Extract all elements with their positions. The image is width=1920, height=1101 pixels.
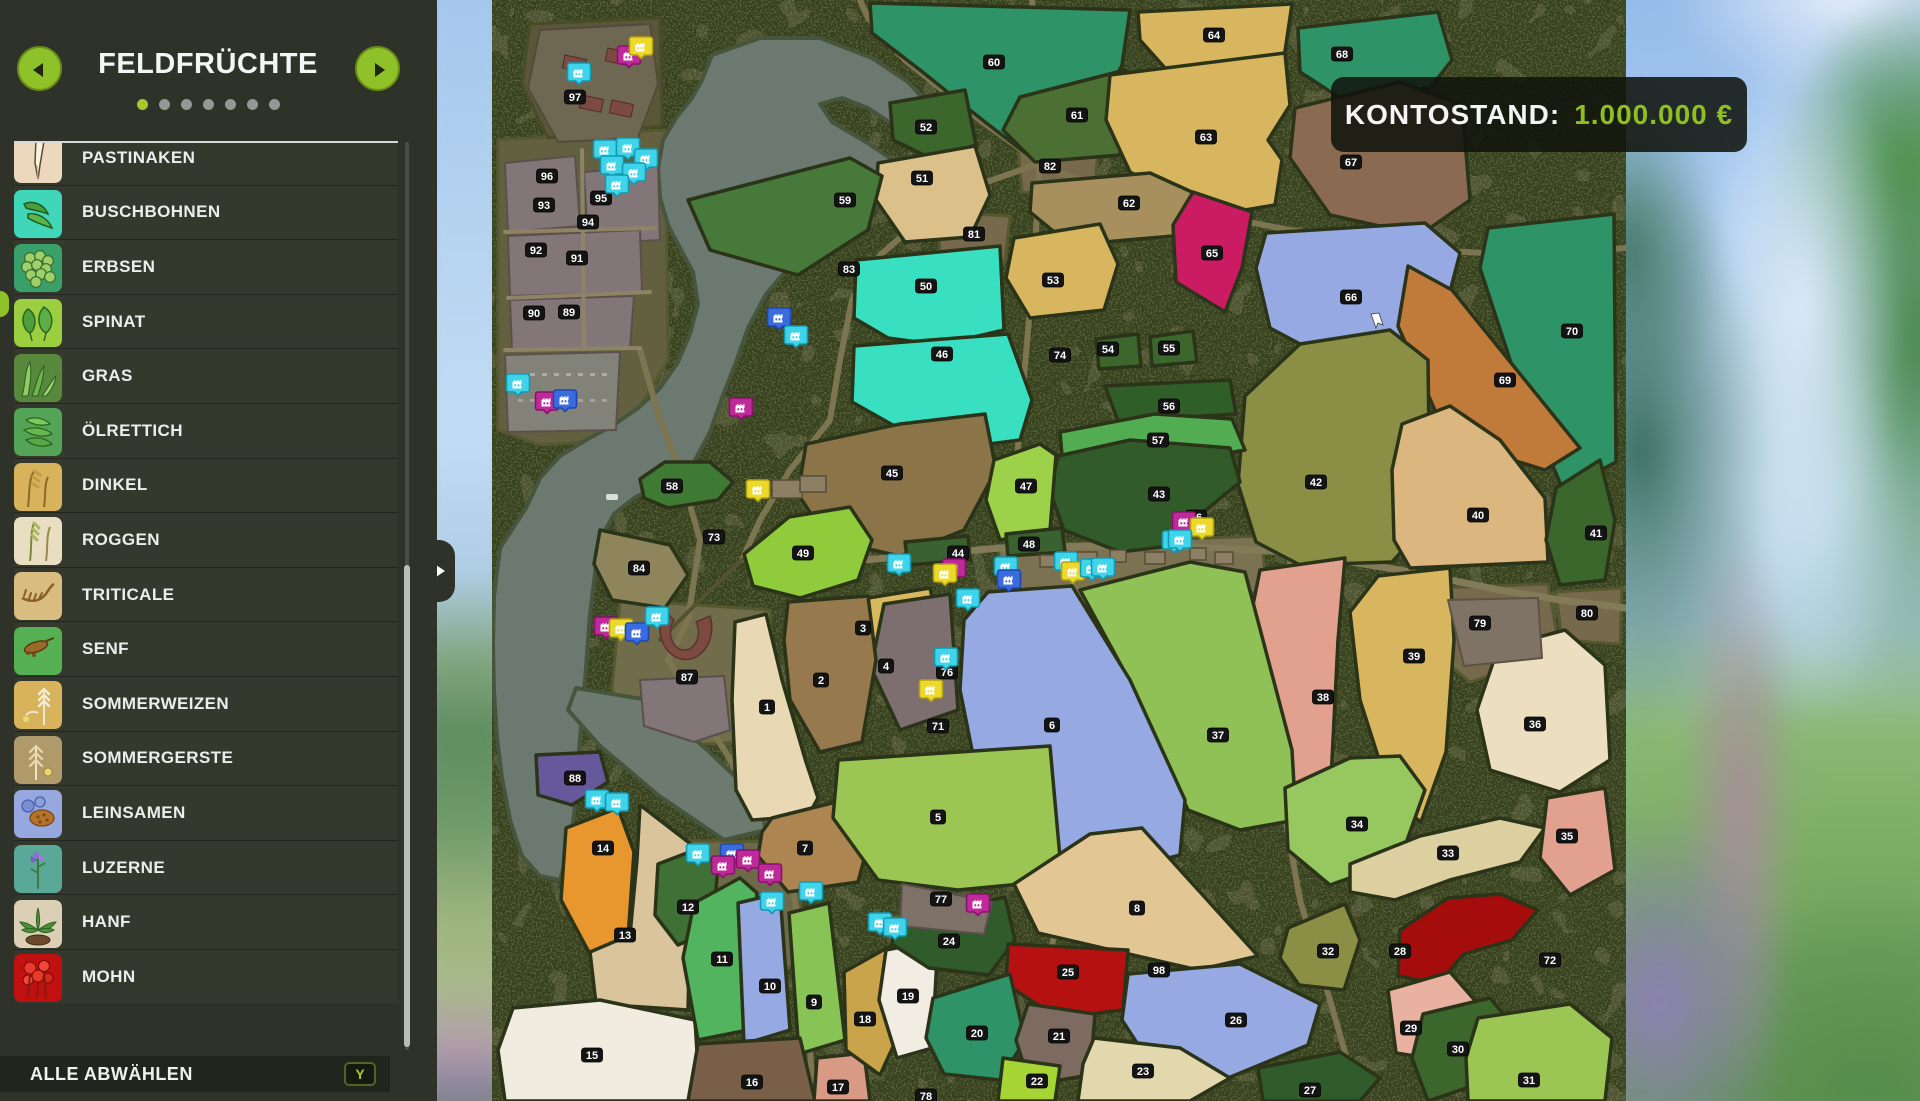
svg-text:89: 89: [563, 307, 575, 319]
svg-text:4: 4: [883, 661, 890, 673]
svg-text:78: 78: [920, 1091, 932, 1101]
svg-text:93: 93: [538, 200, 550, 212]
svg-text:79: 79: [1474, 618, 1486, 630]
svg-text:56: 56: [1163, 401, 1175, 413]
svg-text:39: 39: [1408, 651, 1420, 663]
svg-text:42: 42: [1310, 477, 1322, 489]
svg-text:63: 63: [1200, 132, 1212, 144]
svg-text:12: 12: [682, 902, 694, 914]
svg-text:49: 49: [797, 548, 809, 560]
svg-text:17: 17: [832, 1082, 844, 1094]
svg-text:19: 19: [902, 991, 914, 1003]
svg-text:69: 69: [1499, 375, 1511, 387]
svg-text:50: 50: [920, 281, 932, 293]
svg-text:46: 46: [936, 349, 948, 361]
svg-text:7: 7: [802, 843, 808, 855]
svg-text:2: 2: [818, 675, 824, 687]
svg-text:68: 68: [1336, 49, 1348, 61]
svg-text:10: 10: [764, 981, 776, 993]
svg-text:40: 40: [1472, 510, 1484, 522]
svg-text:47: 47: [1020, 481, 1032, 493]
svg-text:83: 83: [843, 264, 855, 276]
svg-text:38: 38: [1317, 692, 1329, 704]
svg-text:23: 23: [1137, 1066, 1149, 1078]
svg-text:61: 61: [1071, 110, 1083, 122]
svg-text:28: 28: [1394, 946, 1406, 958]
svg-text:36: 36: [1529, 719, 1541, 731]
svg-text:21: 21: [1053, 1031, 1065, 1043]
svg-text:14: 14: [597, 843, 610, 855]
svg-text:97: 97: [569, 92, 581, 104]
svg-text:53: 53: [1047, 275, 1059, 287]
svg-text:31: 31: [1523, 1075, 1535, 1087]
svg-text:58: 58: [666, 481, 678, 493]
svg-text:32: 32: [1322, 946, 1334, 958]
svg-text:65: 65: [1206, 248, 1218, 260]
svg-text:96: 96: [541, 171, 553, 183]
svg-text:54: 54: [1102, 344, 1115, 356]
svg-text:29: 29: [1405, 1023, 1417, 1035]
svg-text:77: 77: [935, 894, 947, 906]
svg-text:3: 3: [860, 623, 866, 635]
svg-text:84: 84: [633, 563, 646, 575]
svg-text:62: 62: [1123, 198, 1135, 210]
svg-text:55: 55: [1163, 343, 1175, 355]
svg-text:52: 52: [920, 122, 932, 134]
svg-text:20: 20: [971, 1028, 983, 1040]
svg-text:51: 51: [916, 173, 928, 185]
svg-text:41: 41: [1590, 528, 1602, 540]
svg-text:80: 80: [1581, 608, 1593, 620]
svg-text:71: 71: [932, 721, 944, 733]
svg-text:92: 92: [530, 245, 542, 257]
svg-text:88: 88: [569, 773, 581, 785]
svg-text:16: 16: [746, 1077, 758, 1089]
svg-text:72: 72: [1544, 955, 1556, 967]
svg-text:94: 94: [582, 217, 595, 229]
svg-text:11: 11: [716, 954, 728, 966]
svg-text:37: 37: [1212, 730, 1224, 742]
svg-text:48: 48: [1023, 539, 1035, 551]
svg-text:8: 8: [1134, 903, 1140, 915]
svg-text:70: 70: [1566, 326, 1578, 338]
svg-text:67: 67: [1345, 157, 1357, 169]
svg-text:43: 43: [1153, 489, 1165, 501]
svg-text:73: 73: [708, 532, 720, 544]
svg-text:22: 22: [1031, 1076, 1043, 1088]
svg-text:33: 33: [1442, 848, 1454, 860]
svg-text:74: 74: [1054, 350, 1067, 362]
svg-text:60: 60: [988, 57, 1000, 69]
svg-text:24: 24: [943, 936, 956, 948]
svg-text:34: 34: [1351, 819, 1364, 831]
svg-text:81: 81: [968, 229, 980, 241]
svg-text:87: 87: [681, 672, 693, 684]
svg-text:35: 35: [1561, 831, 1573, 843]
svg-text:26: 26: [1230, 1015, 1242, 1027]
svg-text:27: 27: [1304, 1085, 1316, 1097]
svg-text:57: 57: [1152, 435, 1164, 447]
svg-text:25: 25: [1062, 967, 1074, 979]
svg-text:98: 98: [1153, 965, 1165, 977]
svg-text:5: 5: [935, 812, 941, 824]
svg-text:90: 90: [528, 308, 540, 320]
svg-text:30: 30: [1452, 1044, 1464, 1056]
svg-text:15: 15: [586, 1050, 598, 1062]
svg-text:59: 59: [839, 195, 851, 207]
svg-text:18: 18: [859, 1014, 871, 1026]
svg-text:82: 82: [1044, 161, 1056, 173]
svg-text:6: 6: [1049, 720, 1055, 732]
svg-text:1: 1: [764, 702, 770, 714]
svg-text:9: 9: [811, 997, 817, 1009]
svg-text:95: 95: [595, 193, 607, 205]
svg-text:45: 45: [886, 468, 898, 480]
svg-text:91: 91: [571, 253, 583, 265]
svg-text:64: 64: [1208, 30, 1221, 42]
svg-text:66: 66: [1345, 292, 1357, 304]
svg-text:13: 13: [619, 930, 631, 942]
